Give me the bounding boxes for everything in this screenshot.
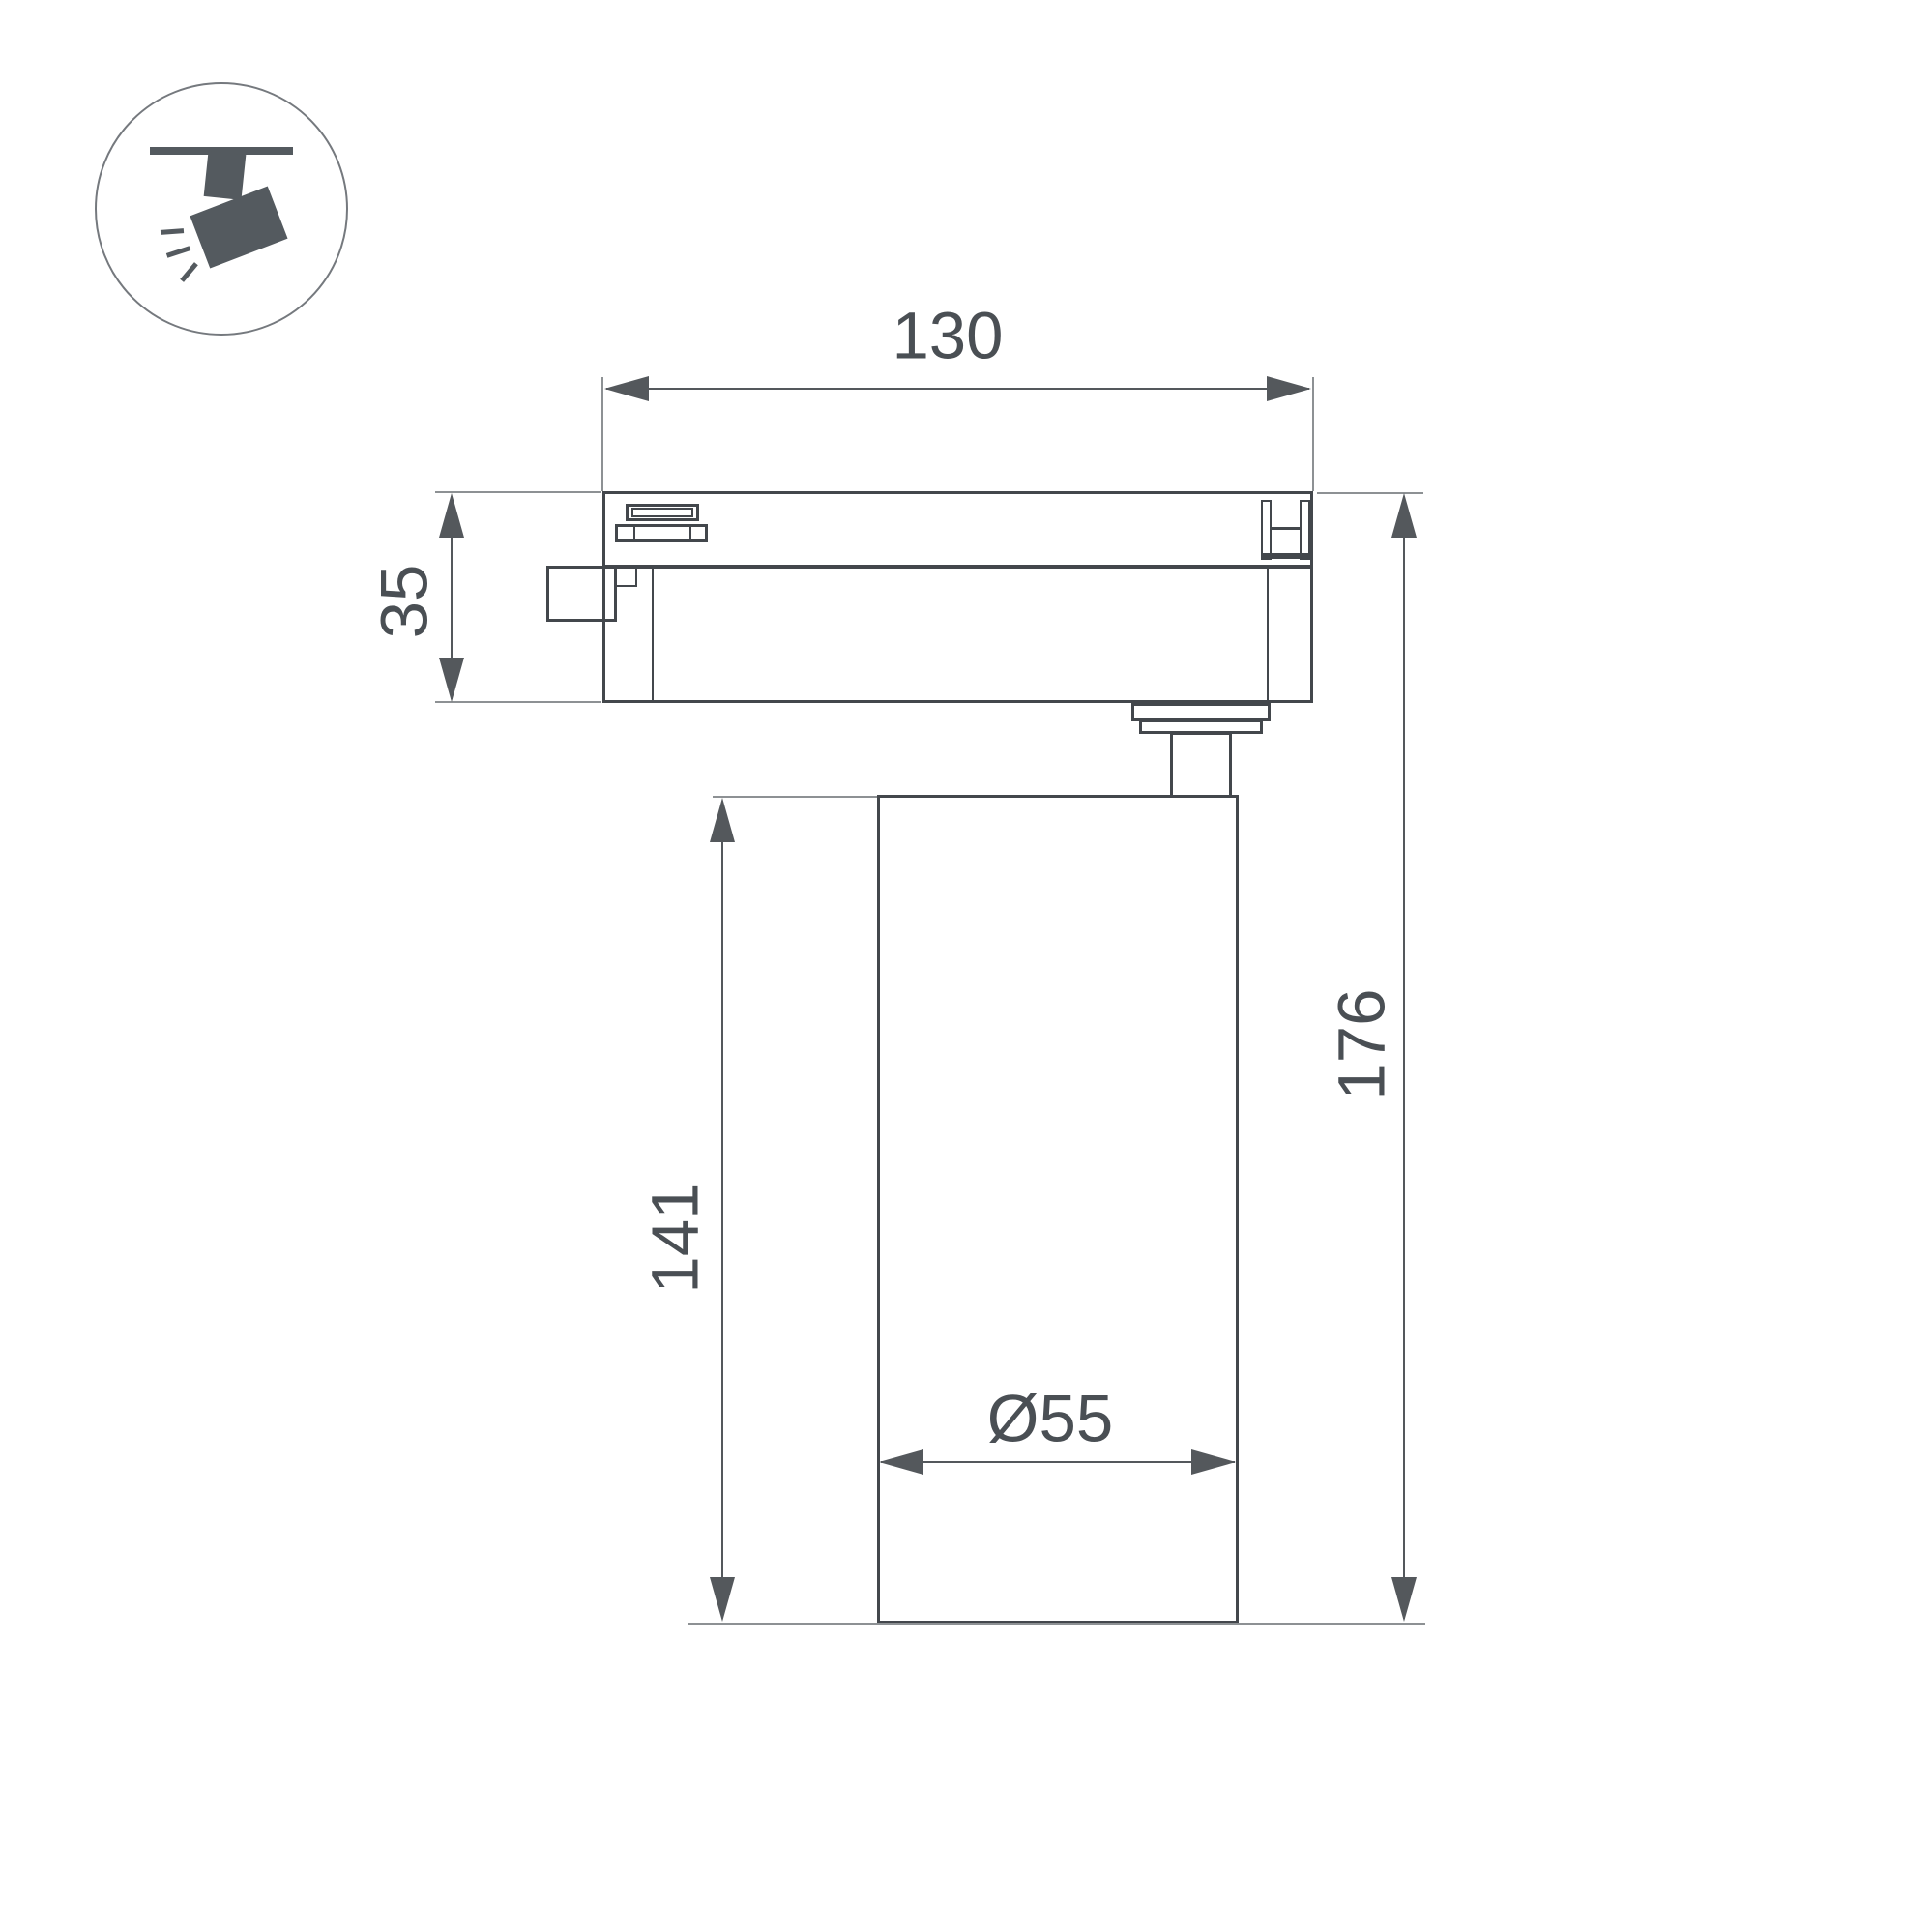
dim-130-line (606, 388, 1309, 390)
dim-body-height-label: 141 (642, 1182, 709, 1293)
icon-lamp-stem (204, 151, 247, 200)
dim-body-diameter-label: Ø55 (987, 1386, 1113, 1452)
adapter-inner-line-left (652, 569, 654, 701)
dim-130-arrow-right (1267, 376, 1311, 401)
adapter-latch-prong-left (1261, 500, 1272, 560)
dim-35-arrow-top (439, 493, 464, 538)
neck-stem (1170, 732, 1232, 798)
track-adapter-upper-outline (602, 491, 1313, 568)
dim-130-extension-right (1312, 377, 1314, 491)
dim-55-arrow-right (1191, 1449, 1236, 1475)
adapter-contact-slot-2-divider-left (633, 526, 635, 540)
adapter-contact-slot-2 (615, 524, 708, 542)
adapter-latch-bottom-bar (1263, 553, 1308, 559)
dim-track-length-label: 130 (892, 303, 1003, 369)
dim-55-arrow-left (879, 1449, 923, 1475)
dim-176-arrow-bottom (1391, 1577, 1417, 1622)
adapter-latch-middle-bar (1270, 527, 1302, 530)
dim-130-arrow-left (604, 376, 649, 401)
dim-141-arrow-bottom (710, 1577, 735, 1622)
dim-176-line (1403, 497, 1405, 1619)
lamp-body-outline (877, 795, 1239, 1624)
adapter-contact-slot-2-divider-right (689, 526, 691, 540)
adapter-lock-lever (546, 566, 617, 622)
dim-bottom-extension (688, 1623, 1425, 1625)
dim-55-line (881, 1461, 1235, 1463)
dim-141-line (721, 802, 723, 1618)
track-adapter-lower-outline (602, 566, 1313, 703)
dimension-drawing: 130 35 141 176 Ø55 (0, 0, 1932, 1932)
dim-adapter-height-label: 35 (371, 565, 438, 639)
dim-176-arrow-top (1391, 493, 1417, 538)
adapter-inner-line-right (1267, 569, 1269, 701)
adapter-lever-bracket (616, 569, 637, 587)
dim-overall-height-label: 176 (1329, 988, 1395, 1099)
dim-35-arrow-bottom (439, 658, 464, 702)
dim-130-extension-left (601, 377, 603, 491)
dim-141-extension-top (713, 796, 877, 798)
dim-141-arrow-top (710, 798, 735, 842)
adapter-contact-slot-1-inner (631, 508, 693, 517)
adapter-latch-prong-right (1300, 500, 1310, 560)
